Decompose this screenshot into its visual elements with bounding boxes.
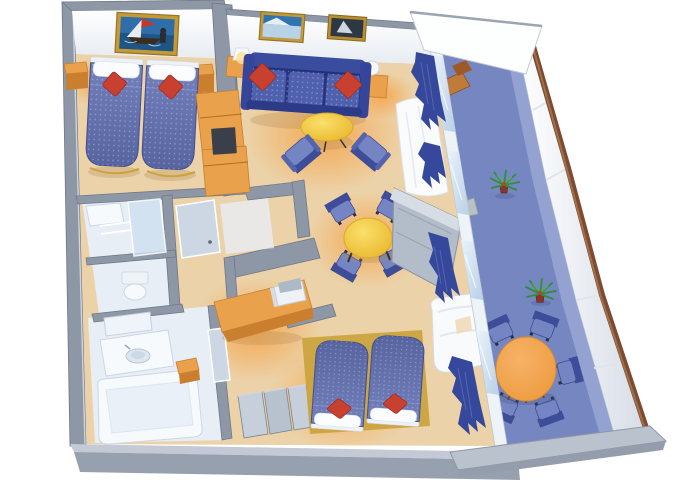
vestibule-floor bbox=[220, 198, 274, 254]
shower-bench bbox=[86, 203, 124, 226]
nightstand bbox=[64, 62, 88, 90]
sink-basin bbox=[131, 351, 145, 359]
palm-shadow bbox=[495, 193, 515, 199]
floor-plan-illustration: Cruise ship suite — isometric cutaway fl… bbox=[0, 0, 680, 486]
twin-bed bbox=[85, 57, 143, 168]
toilet bbox=[124, 284, 146, 300]
floor-plan-stage: Cruise ship suite — isometric cutaway fl… bbox=[0, 0, 680, 486]
twin-bed bbox=[311, 340, 369, 432]
seascape-artwork bbox=[259, 11, 305, 42]
sofa bbox=[240, 52, 372, 119]
dining-table bbox=[344, 218, 392, 258]
shower-glass bbox=[128, 199, 166, 256]
ship-artwork bbox=[327, 15, 367, 42]
toilet-tank bbox=[122, 272, 148, 284]
twin-bed bbox=[141, 60, 199, 171]
bathtub-basin bbox=[106, 381, 193, 433]
entry-door bbox=[176, 200, 220, 258]
door-handle-icon bbox=[208, 240, 212, 244]
balcony-table bbox=[496, 337, 556, 401]
sailing-artwork bbox=[115, 12, 179, 55]
twin-bed bbox=[367, 335, 425, 427]
tv-screen bbox=[211, 127, 237, 155]
